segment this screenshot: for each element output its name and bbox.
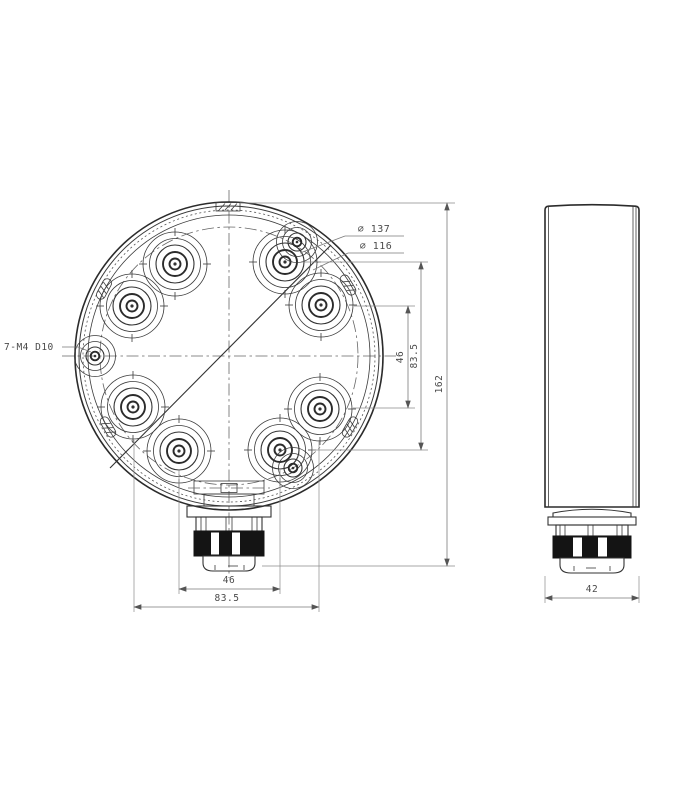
dim-vertical-83-5-label: 83.5: [409, 344, 420, 369]
screw-boss: [139, 228, 211, 300]
gland-nut-side: [553, 536, 631, 558]
dim-vertical-83-5: 83.5: [409, 262, 421, 450]
dimensions: 46 83.5 162 46 83.5: [4, 203, 639, 612]
grip-slot: [338, 273, 357, 296]
gland-cap-side: [560, 558, 624, 573]
callout-dia-116-label: ⌀ 116: [360, 241, 393, 252]
m4-hole: [75, 336, 116, 377]
m4-hole: [277, 222, 318, 263]
gland-nut-front: [194, 531, 264, 556]
junction-box-side-body: [545, 205, 639, 507]
grip-slot: [95, 277, 113, 301]
dim-horizontal-83-5-label: 83.5: [215, 593, 240, 604]
screw-boss: [96, 270, 168, 342]
diagonal-line: [110, 245, 331, 468]
dim-side-width-label: 42: [586, 584, 598, 595]
callout-thread: 7-M4 D10: [4, 342, 91, 353]
callout-dia-137-label: ⌀ 137: [358, 224, 391, 235]
callout-dia-116: ⌀ 116: [313, 241, 404, 270]
dim-side-width-42: 42: [545, 576, 639, 603]
dim-vertical-46-label: 46: [395, 351, 406, 363]
dim-horizontal-83-5: 83.5: [134, 593, 319, 607]
dim-overall-height-162: 162: [434, 203, 447, 566]
dim-vertical-46: 46: [395, 306, 408, 408]
dim-overall-height-label: 162: [434, 375, 445, 394]
dim-horizontal-46: 46: [179, 575, 280, 589]
front-view: [62, 190, 396, 578]
drawing-page: 46 83.5 162 46 83.5: [0, 0, 700, 800]
m4-hole: [273, 448, 314, 489]
screw-boss: [284, 373, 356, 445]
side-view: [545, 205, 639, 573]
cable-gland-side: [548, 509, 636, 573]
dim-horizontal-46-label: 46: [223, 575, 235, 586]
technical-drawing: 46 83.5 162 46 83.5: [0, 0, 700, 800]
callout-thread-label: 7-M4 D10: [4, 342, 54, 353]
